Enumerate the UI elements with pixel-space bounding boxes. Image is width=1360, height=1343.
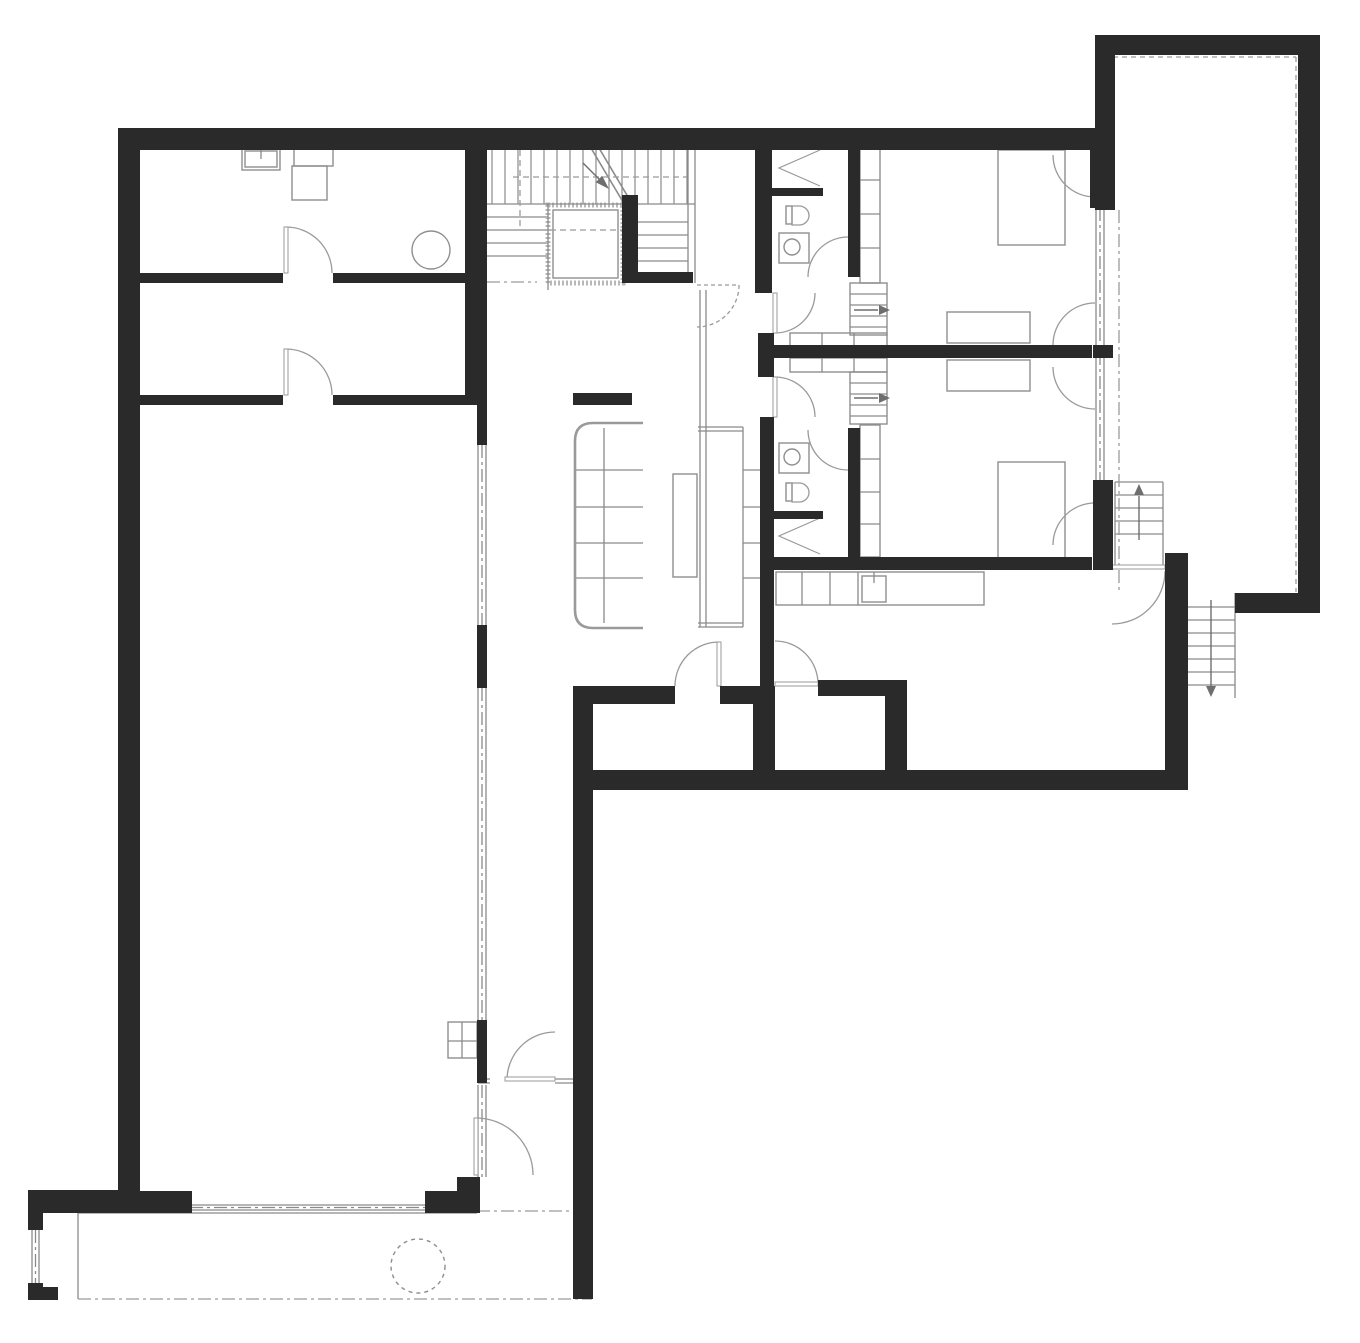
- room-divider-1-left: [140, 273, 283, 283]
- wing-wall-left: [1095, 55, 1115, 210]
- door-leaf-unit2: [773, 377, 777, 417]
- floor-plan-drawing: [0, 0, 1360, 1343]
- stairhall-west-wall: [465, 150, 487, 405]
- outer-wall-left: [118, 128, 140, 1213]
- east-pier-lower: [1093, 480, 1113, 570]
- bottom-pier-lower: [425, 1191, 480, 1213]
- corridor-east-wall-mid: [758, 333, 774, 377]
- bath1-east-wall: [848, 146, 860, 277]
- bigroom-east-wall: [1165, 553, 1188, 790]
- stair-stub-vertical: [622, 195, 638, 283]
- stair-stub-horizontal: [623, 272, 693, 283]
- plan-background: [0, 0, 1360, 1343]
- wing-wall-top: [1095, 35, 1320, 55]
- door-leaf-roomB: [775, 682, 818, 686]
- corridor-east-wall-upper: [755, 146, 772, 293]
- room-divider-2-right: [333, 395, 477, 405]
- bath1-stub-wall: [772, 188, 823, 196]
- door-leaf-bigroom: [1112, 565, 1165, 569]
- hall-south-wall-right: [720, 686, 753, 704]
- porch-wall-left: [28, 1190, 43, 1230]
- roomB-north-wall: [818, 680, 907, 696]
- unit-divider-pier: [1093, 345, 1113, 358]
- roomAB-divider-wall: [753, 686, 775, 770]
- floor-plan-page: [0, 0, 1360, 1343]
- west-pier-1: [477, 405, 487, 445]
- door-leaf-hall-storage: [717, 642, 721, 686]
- door-leaf-room1: [284, 227, 288, 273]
- west-pier-2: [477, 625, 487, 688]
- corridor-west-wall: [573, 686, 593, 1299]
- door-leaf-vestibule-lower: [474, 1118, 478, 1175]
- outer-wall-bottom-left: [118, 1191, 192, 1213]
- outer-wall-top: [118, 128, 1113, 150]
- door-leaf-room2: [284, 349, 288, 395]
- porch-wall-bottom-2: [28, 1287, 58, 1300]
- wing-wall-bottom: [1235, 593, 1298, 613]
- room-divider-1-right: [333, 273, 467, 283]
- roomB-east-wall: [885, 696, 907, 770]
- door-leaf-vestibule-upper: [505, 1077, 555, 1081]
- bath2-east-wall: [848, 428, 860, 557]
- corridor-east-wall-lower: [760, 417, 774, 688]
- bedroom-south-wall: [760, 557, 1092, 570]
- fireplace-block: [573, 393, 632, 405]
- room-divider-2-left: [140, 395, 283, 405]
- unit-divider-wall: [772, 345, 1092, 358]
- bath2-stub-wall: [772, 511, 823, 519]
- wing-wall-right: [1298, 55, 1320, 613]
- hall-south-wall-left: [573, 686, 675, 704]
- door-leaf-unit1: [773, 293, 777, 333]
- bigroom-south-wall: [593, 770, 1188, 790]
- west-pier-3: [477, 1020, 487, 1083]
